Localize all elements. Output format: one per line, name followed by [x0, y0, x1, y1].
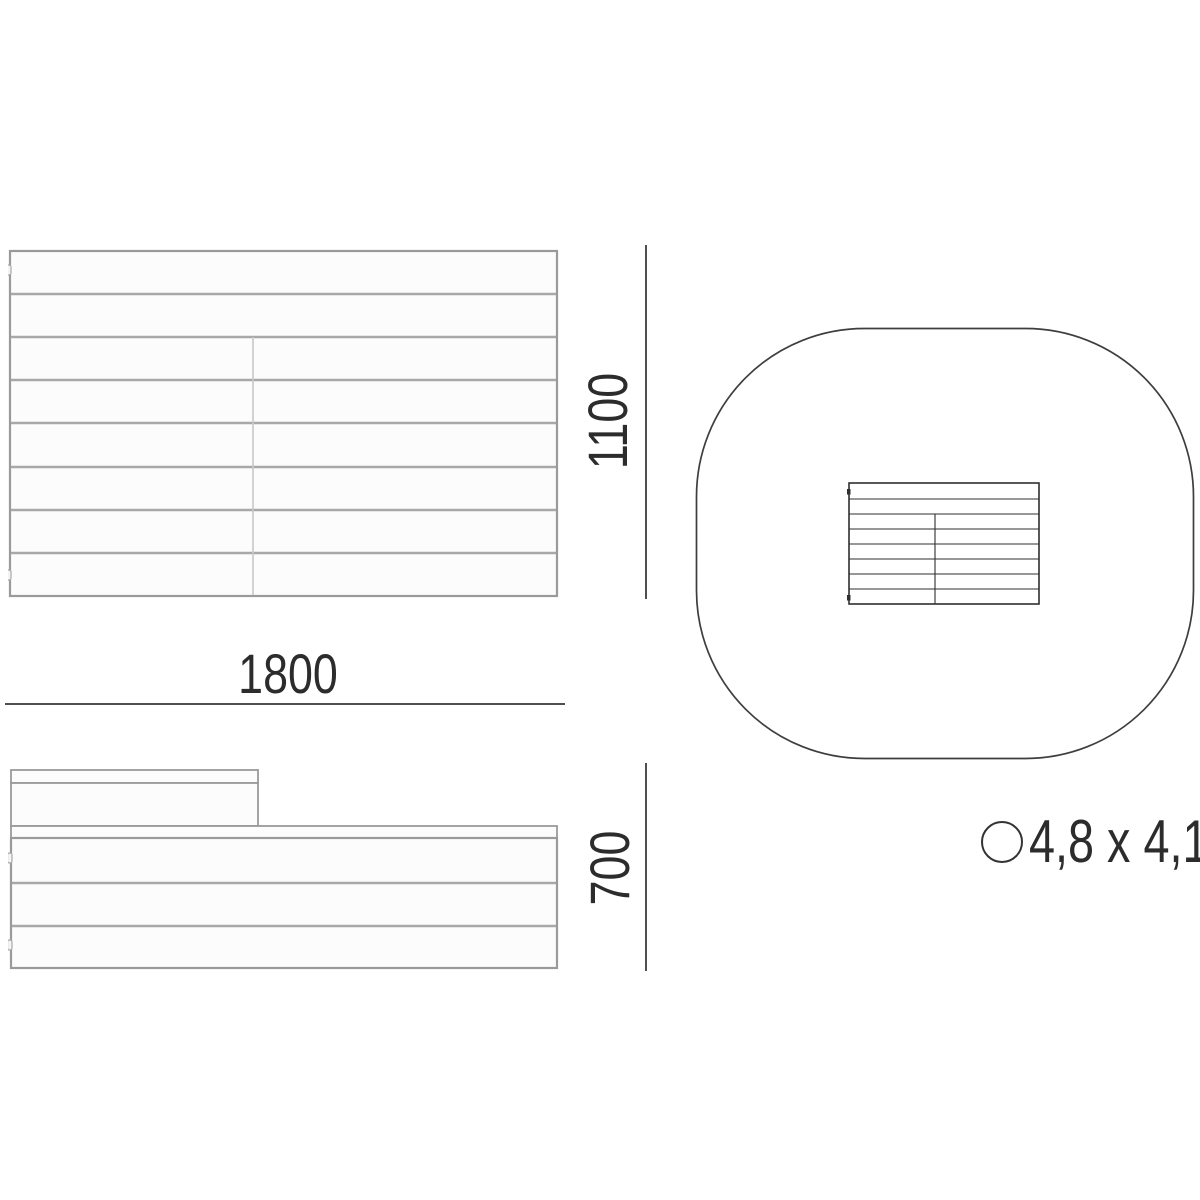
technical-drawing-page: { "drawing": { "dimensions": { "width": …	[0, 0, 1200, 1200]
dimension-label-depth: 700	[580, 788, 640, 948]
side-view-svg	[8, 768, 559, 970]
safety-zone-dimensions-label: 4,8 x 4,1	[1029, 812, 1200, 872]
top-view-svg	[694, 326, 1197, 763]
dimension-label-height: 1100	[578, 341, 638, 501]
front-view-svg	[8, 249, 559, 598]
side-view-drawing	[8, 768, 559, 970]
safety-zone-circle-icon	[981, 821, 1023, 863]
dimension-line-depth	[645, 763, 647, 971]
front-view-drawing	[8, 249, 559, 598]
dimension-label-width: 1800	[128, 644, 448, 704]
dimension-line-height	[645, 245, 647, 599]
safety-zone-legend: 4,8 x 4,1	[981, 812, 1200, 872]
top-view-safety-zone-drawing	[694, 326, 1197, 763]
